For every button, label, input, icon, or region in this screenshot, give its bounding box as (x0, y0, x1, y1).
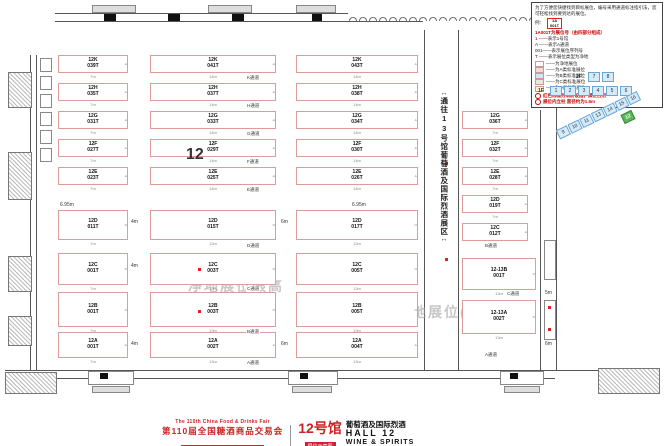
booth-12E026T: 12E026T4 (296, 167, 418, 185)
booth-depth-label: 4 (523, 231, 528, 233)
door-mark (104, 14, 116, 21)
booth-depth-label: 6 (531, 316, 536, 318)
booth-depth-label: 6 (271, 308, 276, 310)
booth-12C003T: 12C003T6 (150, 253, 276, 285)
booth-id-line2: 038T (351, 92, 362, 98)
door-mark (232, 14, 244, 21)
booth-depth-label: 4 (413, 344, 418, 346)
stairs-block (598, 368, 660, 394)
booth-id-line2: 033T (207, 120, 218, 126)
dimension-label: 6.95m (352, 202, 366, 208)
booth-size-label: 7m (462, 130, 528, 135)
booth-12A002T: 12A002T4 (150, 332, 276, 358)
dimension-label: 6m (545, 341, 552, 347)
wall-segment (544, 240, 556, 280)
booth-depth-label: 4 (271, 91, 276, 93)
navigator-floor-label: 2F (576, 74, 582, 80)
booth-depth-label: 4 (271, 344, 276, 346)
wall-segment (500, 371, 544, 385)
booth-id-line2: 003T (207, 269, 218, 275)
booth-id-line2: 031T (87, 120, 98, 126)
booth-id-line2: 027T (87, 148, 98, 154)
wall-segment (296, 5, 336, 13)
booth-size-label: 14m (296, 186, 418, 191)
booth-depth-label: 4 (523, 147, 528, 149)
booth-id-line2: 039T (87, 64, 98, 70)
booth-id-line2: 011T (87, 225, 98, 231)
legend-rule: T ——表示展位类型为净地 (535, 54, 659, 60)
booth-12A001T: 12A001T4 (58, 332, 128, 358)
booth-depth-label: 4 (271, 63, 276, 65)
fire-hydrant-marker (198, 268, 201, 271)
plan-badge: 展位示意图 (305, 442, 336, 446)
stairs-block (5, 372, 57, 394)
booth-12B005T: 12B005T6 (296, 292, 418, 327)
navigator-hall-7: 7 (588, 72, 600, 82)
aisle-label-A通道: A通道 (484, 352, 498, 358)
booth-size-label: 7m (58, 130, 128, 135)
booth-depth-label: 4 (123, 63, 128, 65)
booth-size-label: 14m (296, 130, 418, 135)
booth-depth-label: 6 (123, 268, 128, 270)
booth-12G031T: 12G031T4 (58, 111, 128, 129)
booth-id-line2: 005T (351, 269, 362, 275)
fire-hydrant-marker (198, 310, 201, 313)
dimension-label: 6m (281, 341, 288, 347)
dimension-label: 4m (131, 263, 138, 269)
booth-12K043T: 12K043T4 (296, 55, 418, 73)
aisle-label-B通道: B通道 (484, 243, 498, 249)
booth-12D019T: 12D019T4 (462, 195, 528, 213)
aisle-label-C通道: C通道 (506, 291, 520, 297)
dimension-label: 5m (545, 290, 552, 296)
booth-id-line2: 037T (207, 92, 218, 98)
booth-size-label: 7m (58, 359, 128, 364)
booth-id-line2: 012T (489, 232, 500, 238)
booth-12G033T: 12G033T4 (150, 111, 276, 129)
booth-depth-label: 6 (123, 224, 128, 226)
booth-id-line2: 019T (489, 204, 500, 210)
aisle-label-B通道: B通道 (246, 329, 260, 335)
booth-id-line2: 002T (207, 345, 218, 351)
legend-rules: 1 ——表示1号馆A ——表示A通道001——表示展位序列号T ——表示展位类型… (535, 36, 659, 60)
booth-id-line2: 041T (207, 64, 218, 70)
booth-depth-label: 4 (413, 91, 418, 93)
hall-title-cn: 12号馆 (298, 421, 342, 435)
booth-size-label: 13m (462, 291, 536, 296)
hall-navigator: 2F781F123456 9101113141516 12 (538, 72, 664, 150)
navigator-hall-3: 3 (578, 86, 590, 96)
wall-segment (40, 76, 52, 90)
aisle-label-K通道: K通道 (246, 75, 260, 81)
booth-id-line2: 003T (207, 310, 218, 316)
booth-depth-label: 6 (123, 308, 128, 310)
aisle-label-A通道: A通道 (246, 360, 260, 366)
booth-size-label: 7m (58, 286, 128, 291)
wall-segment (504, 386, 540, 393)
booth-size-label: 7m (462, 158, 528, 163)
booth-12C005T: 12C005T6 (296, 253, 418, 285)
booth-size-label: 7m (58, 186, 128, 191)
wall-segment (348, 12, 558, 21)
legend-sample-line2: 001T (550, 23, 559, 28)
aisle-label-C通道: C通道 (246, 286, 260, 292)
wall-segment (40, 130, 52, 144)
navigator-hall-2: 2 (564, 86, 576, 96)
navigator-hall-4: 4 (592, 86, 604, 96)
booth-id-line2: 004T (351, 345, 362, 351)
dimension-label: 6m (281, 219, 288, 225)
fire-hydrant-marker (548, 306, 551, 309)
navigator-hall-8: 8 (602, 72, 614, 82)
booth-depth-label: 4 (523, 119, 528, 121)
wall-segment (92, 5, 136, 13)
booth-size-label: 12m (296, 241, 418, 246)
booth-depth-label: 6 (531, 273, 536, 275)
booth-id-line2: 034T (351, 120, 362, 126)
booth-depth-label: 4 (123, 344, 128, 346)
navigator-hall-5: 5 (606, 86, 618, 96)
booth-size-label: 7m (462, 186, 528, 191)
booth-id-line2: 023T (87, 176, 98, 182)
booth-depth-label: 6 (271, 268, 276, 270)
booth-12E023T: 12E023T4 (58, 167, 128, 185)
hall-title-en: HALL 12 (346, 429, 414, 439)
booth-id-line2: 036T (489, 120, 500, 126)
wall-segment (92, 386, 130, 393)
booth-depth-label: 6 (413, 308, 418, 310)
booth-12H035T: 12H035T4 (58, 83, 128, 101)
booth-12F030T: 12F030T4 (296, 139, 418, 157)
booth-12E025T: 12E025T4 (150, 167, 276, 185)
booth-depth-label: 4 (413, 147, 418, 149)
aisle-label-D通道: D通道 (246, 243, 260, 249)
wall-segment (40, 58, 52, 72)
corridor-arrow-bottom-icon: ↔ (441, 236, 448, 243)
title-block: The 110th China Food & Drinks Fair 第110届… (162, 419, 414, 446)
booth-12G036T: 12G036T4 (462, 111, 528, 129)
wall-segment (55, 21, 423, 22)
booth-depth-label: 4 (523, 175, 528, 177)
fire-hydrant-marker (445, 258, 448, 261)
booth-12K041T: 12K041T4 (150, 55, 276, 73)
booth-depth-label: 4 (413, 175, 418, 177)
booth-id-line2: 001T (87, 310, 98, 316)
booth-id-line2: 029T (207, 148, 218, 154)
wall-segment (40, 148, 52, 162)
booth-depth-label: 6 (271, 224, 276, 226)
booth-12E028T: 12E028T4 (462, 167, 528, 185)
hall-number-label: 12 (186, 146, 204, 164)
booth-12-13B001T: 12-13B001T6 (462, 258, 536, 290)
booth-12D017T: 12D017T6 (296, 210, 418, 240)
legend-example-label: 例： (535, 20, 544, 26)
booth-depth-label: 4 (271, 175, 276, 177)
booth-id-line2: 017T (351, 225, 362, 231)
booth-12F029T: 12F029T4 (150, 139, 276, 157)
booth-id-line2: 028T (489, 176, 500, 182)
door-mark (510, 373, 518, 379)
booth-size-label: 7m (58, 241, 128, 246)
booth-size-label: 7m (58, 74, 128, 79)
hall-subtitle-en: WINE & SPIRITS (346, 439, 414, 446)
booth-12B003T: 12B003T6 (150, 292, 276, 327)
legend-sample-booth: 1A 001T (547, 18, 562, 29)
wall-segment (208, 5, 252, 13)
booth-12F027T: 12F027T4 (58, 139, 128, 157)
door-mark (100, 373, 108, 379)
booth-size-label: 13m (296, 359, 418, 364)
booth-depth-label: 4 (123, 119, 128, 121)
booth-id-line2: 043T (351, 64, 362, 70)
navigator-floor-label: 1F (538, 88, 544, 94)
corridor-to-hall13: ↔ 通往13号馆葡萄酒及国际烈酒展区 ↔ (437, 90, 451, 243)
stairs-block (8, 316, 32, 346)
booth-size-label: 7m (58, 158, 128, 163)
booth-depth-label: 6 (413, 268, 418, 270)
booth-12C012T: 12C012T4 (462, 223, 528, 241)
stairs-block (8, 256, 32, 292)
booth-12B001T: 12B001T6 (58, 292, 128, 327)
booth-depth-label: 4 (271, 147, 276, 149)
booth-depth-label: 4 (413, 63, 418, 65)
booth-size-label: 14m (296, 102, 418, 107)
floorplan-page: 净地展位限高净地展位(12-13)高12K039T47m12K041T414m1… (0, 0, 666, 446)
door-mark (168, 14, 180, 21)
stairs-block (8, 72, 32, 108)
booth-depth-label: 4 (413, 119, 418, 121)
booth-id-line2: 002T (493, 317, 504, 323)
booth-12D011T: 12D011T6 (58, 210, 128, 240)
booth-12G034T: 12G034T4 (296, 111, 418, 129)
booth-size-label: 14m (296, 74, 418, 79)
wall-segment (288, 371, 338, 385)
booth-id-line2: 005T (351, 310, 362, 316)
dimension-label: 4m (131, 341, 138, 347)
booth-id-line2: 026T (351, 176, 362, 182)
booth-12F032T: 12F032T4 (462, 139, 528, 157)
booth-depth-label: 4 (523, 203, 528, 205)
booth-12D015T: 12D015T6 (150, 210, 276, 240)
booth-size-label: 7m (58, 102, 128, 107)
booth-12-13A002T: 12-13A002T6 (462, 300, 536, 334)
stairs-block (8, 152, 32, 200)
booth-12K039T: 12K039T4 (58, 55, 128, 73)
fair-title-zh: 第110届全国糖酒商品交易会 (162, 425, 283, 437)
aisle-label-E通道: E通道 (246, 187, 260, 193)
booth-id-line2: 001T (87, 345, 98, 351)
booth-size-label: 13m (462, 335, 536, 340)
aisle-label-H通道: H通道 (246, 103, 260, 109)
booth-id-line2: 001T (493, 274, 504, 280)
door-mark (300, 373, 308, 379)
booth-depth-label: 4 (271, 119, 276, 121)
booth-id-line2: 015T (207, 225, 218, 231)
corridor-arrow-top-icon: ↔ (441, 90, 448, 97)
booth-id-line2: 032T (489, 148, 500, 154)
booth-size-label: 13m (296, 286, 418, 291)
booth-id-line2: 025T (207, 176, 218, 182)
wall-segment (40, 94, 52, 108)
booth-depth-label: 6 (413, 224, 418, 226)
legend-intro: 为了方便您快捷找到目标展位，编号采用通道标注指引法，您可轻松找到要到达的展位。 (535, 5, 659, 17)
booth-12A004T: 12A004T4 (296, 332, 418, 358)
booth-12H037T: 12H037T4 (150, 83, 276, 101)
navigator-hall-current-12: 12 (620, 110, 635, 124)
dimension-label: 6.95m (60, 202, 74, 208)
booth-depth-label: 4 (123, 175, 128, 177)
aisle-label-G通道: G通道 (246, 131, 261, 137)
booth-id-line2: 030T (351, 148, 362, 154)
booth-size-label: 14m (296, 158, 418, 163)
booth-id-line2: 001T (87, 269, 98, 275)
aisle-label-F通道: F通道 (246, 159, 260, 165)
booth-12C001T: 12C001T6 (58, 253, 128, 285)
wall-segment (88, 371, 134, 385)
wall-segment (36, 55, 37, 370)
dimension-label: 4m (131, 219, 138, 225)
booth-12H038T: 12H038T4 (296, 83, 418, 101)
wall-segment (40, 112, 52, 126)
booth-size-label: 7m (462, 214, 528, 219)
navigator-hall-1: 1 (550, 86, 562, 96)
booth-depth-label: 4 (123, 147, 128, 149)
title-divider (290, 425, 291, 446)
booth-id-line2: 035T (87, 92, 98, 98)
corridor-text: 通往13号馆葡萄酒及国际烈酒展区 (440, 97, 448, 236)
wall-segment (292, 386, 332, 393)
door-mark (312, 14, 322, 21)
booth-depth-label: 4 (123, 91, 128, 93)
fire-hydrant-marker (548, 328, 551, 331)
